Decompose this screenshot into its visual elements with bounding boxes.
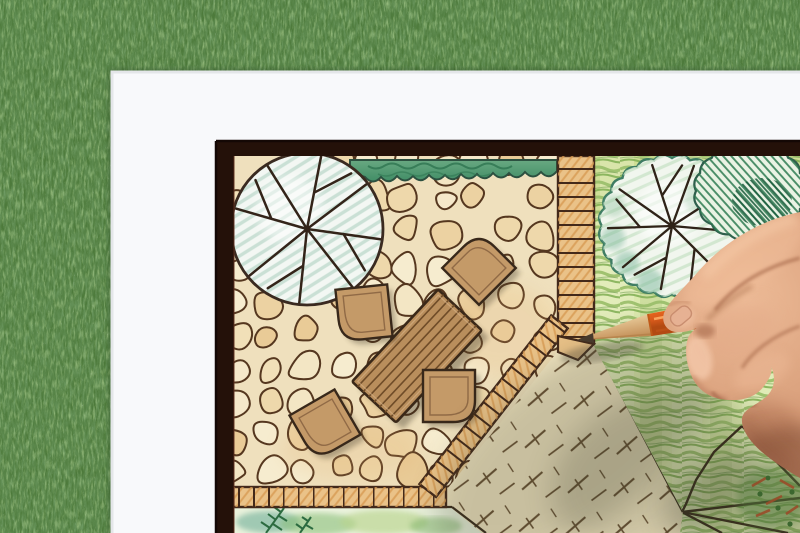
brick-path-vertical bbox=[558, 156, 594, 344]
photo-canvas bbox=[0, 0, 800, 533]
brick-border-bottom bbox=[233, 487, 446, 507]
garden-plan-photo bbox=[0, 0, 800, 533]
chair-se bbox=[423, 370, 480, 427]
